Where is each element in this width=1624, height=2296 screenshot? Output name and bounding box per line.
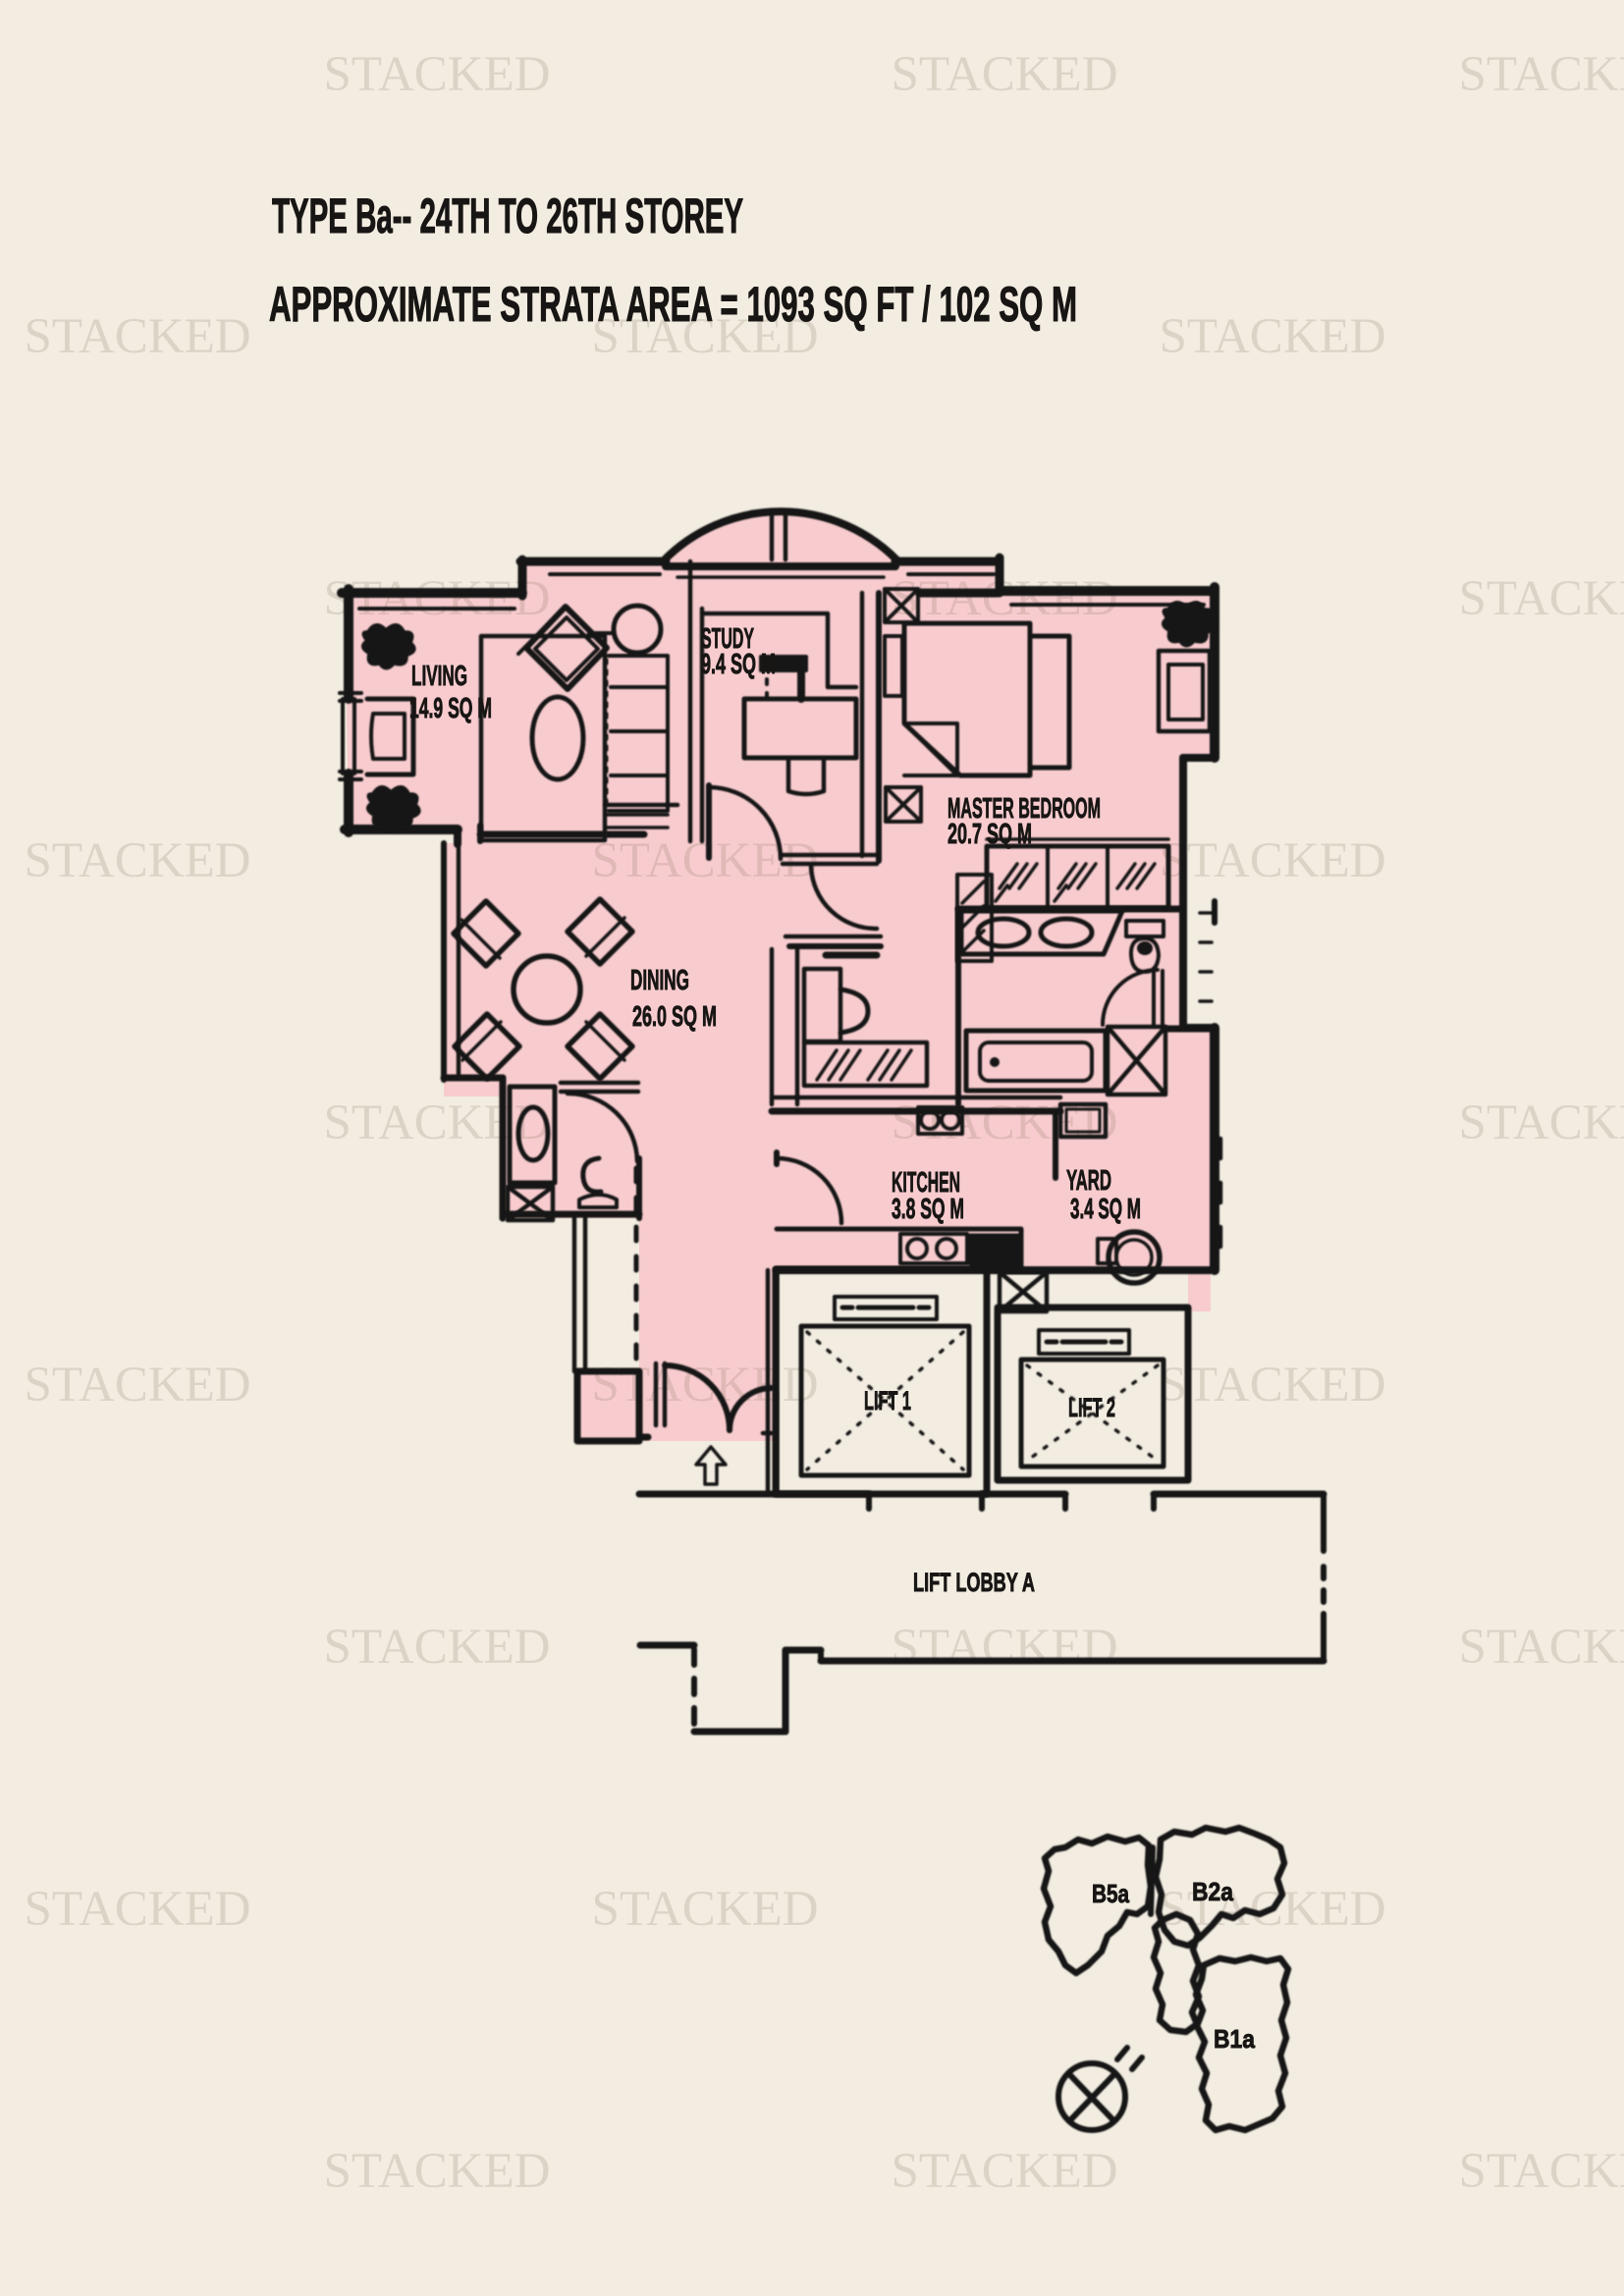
svg-text:STACKED: STACKED xyxy=(1458,1620,1624,1675)
svg-text:STACKED: STACKED xyxy=(891,47,1117,102)
svg-text:LIFT 1: LIFT 1 xyxy=(864,1386,911,1415)
svg-text:STACKED: STACKED xyxy=(1159,1358,1385,1413)
svg-text:YARD: YARD xyxy=(1066,1165,1111,1197)
svg-text:TYPE Ba-- 24TH TO 26TH STOREY: TYPE Ba-- 24TH TO 26TH STOREY xyxy=(272,188,743,243)
svg-text:STACKED: STACKED xyxy=(591,1358,818,1413)
svg-text:STACKED: STACKED xyxy=(891,1620,1117,1675)
svg-text:STACKED: STACKED xyxy=(323,571,550,626)
svg-text:STACKED: STACKED xyxy=(1458,1095,1624,1150)
svg-text:LIVING: LIVING xyxy=(411,661,467,692)
svg-text:STACKED: STACKED xyxy=(891,2144,1117,2199)
svg-text:STACKED: STACKED xyxy=(1458,2144,1624,2199)
svg-text:STACKED: STACKED xyxy=(24,309,250,364)
svg-text:3.4 SQ M: 3.4 SQ M xyxy=(1070,1194,1141,1225)
svg-text:B1a: B1a xyxy=(1214,2024,1255,2054)
svg-text:STACKED: STACKED xyxy=(323,2144,550,2199)
svg-text:14.9 SQ M: 14.9 SQ M xyxy=(409,693,492,724)
svg-text:STACKED: STACKED xyxy=(1458,47,1624,102)
svg-text:DINING: DINING xyxy=(630,965,689,996)
svg-text:STACKED: STACKED xyxy=(323,1095,550,1150)
svg-text:20.7 SQ M: 20.7 SQ M xyxy=(947,819,1032,850)
svg-text:3.8 SQ M: 3.8 SQ M xyxy=(892,1194,964,1225)
svg-text:STACKED: STACKED xyxy=(591,1882,818,1937)
svg-text:9.4 SQ M: 9.4 SQ M xyxy=(701,649,776,680)
svg-text:STACKED: STACKED xyxy=(891,571,1117,626)
svg-text:B5a: B5a xyxy=(1092,1879,1129,1908)
svg-text:APPROXIMATE STRATA AREA = 1093: APPROXIMATE STRATA AREA = 1093 SQ FT / 1… xyxy=(269,277,1077,332)
svg-text:STACKED: STACKED xyxy=(24,1882,250,1937)
svg-text:26.0 SQ M: 26.0 SQ M xyxy=(632,1001,717,1033)
svg-text:LIFT LOBBY A: LIFT LOBBY A xyxy=(913,1568,1035,1597)
svg-text:STACKED: STACKED xyxy=(1159,309,1385,364)
svg-text:STACKED: STACKED xyxy=(323,1620,550,1675)
svg-text:B2a: B2a xyxy=(1192,1877,1233,1906)
svg-text:STACKED: STACKED xyxy=(591,833,818,888)
svg-text:STACKED: STACKED xyxy=(1159,833,1385,888)
svg-text:STACKED: STACKED xyxy=(24,833,250,888)
svg-text:STACKED: STACKED xyxy=(1458,571,1624,626)
svg-text:STACKED: STACKED xyxy=(24,1358,250,1413)
svg-text:LIFT 2: LIFT 2 xyxy=(1068,1393,1115,1422)
svg-text:STACKED: STACKED xyxy=(323,47,550,102)
